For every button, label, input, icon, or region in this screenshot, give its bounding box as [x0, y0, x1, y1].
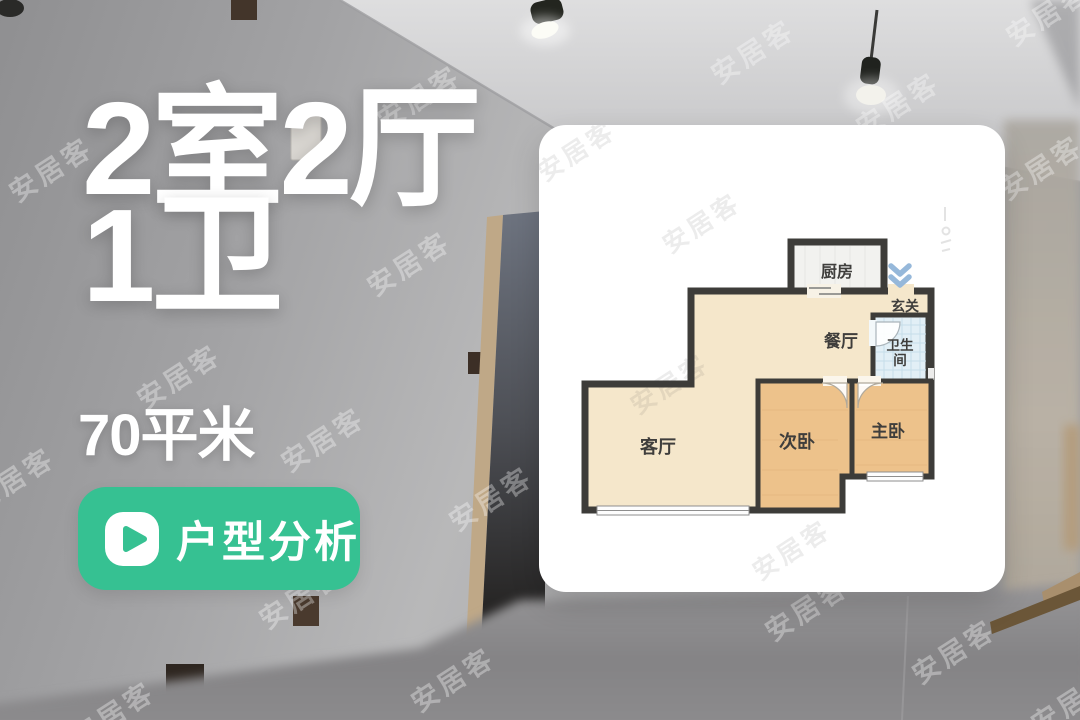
room-label-bathroom: 卫生间	[880, 338, 920, 368]
room-label-living: 客厅	[640, 436, 676, 457]
room-label-entry: 玄关	[891, 298, 919, 314]
plan-annotation-marks	[941, 207, 951, 251]
floorplan-analysis-button[interactable]: 户型分析	[78, 487, 360, 590]
window	[867, 472, 923, 481]
room-label-kitchen: 厨房	[821, 262, 853, 281]
room-label-bedroom-master: 主卧	[871, 421, 905, 441]
entry-arrow-icon	[891, 266, 909, 285]
wall-outlet	[293, 596, 319, 626]
window	[597, 506, 749, 515]
room-label-bedroom-second: 次卧	[779, 431, 815, 452]
play-icon	[105, 512, 159, 566]
analysis-button-label: 户型分析	[176, 508, 360, 570]
kitchen-door	[807, 284, 841, 298]
area-label: 70平米	[78, 388, 255, 472]
listing-cover: 安居客安居客安居客安居客安居客安居客安居客安居客安居客安居客安居客安居客安居客安…	[0, 0, 1080, 720]
room-label-dining: 餐厅	[824, 331, 858, 351]
floorplan-diagram: 厨房 玄关 餐厅 卫生间 客厅 次卧 主卧	[539, 125, 1005, 592]
right-door-glow	[1064, 425, 1080, 550]
wall-outlet	[231, 0, 257, 20]
floorplan-card: 厨房 玄关 餐厅 卫生间 客厅 次卧 主卧 安居客安居客安居客安居客	[539, 125, 1005, 592]
layout-title: 2室2厅 1卫	[82, 96, 477, 310]
